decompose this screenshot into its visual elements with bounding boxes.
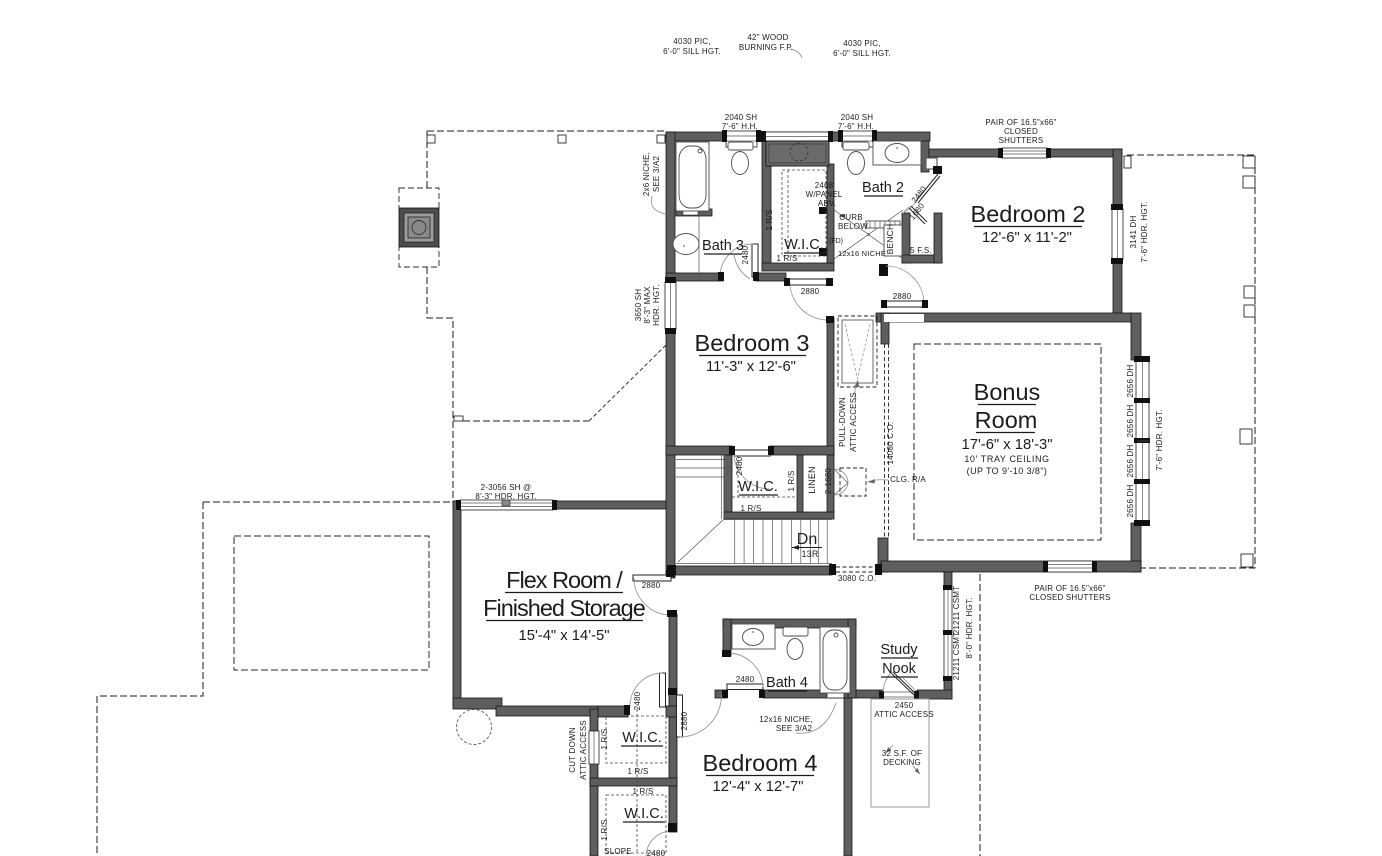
svg-text:12x16 NICHE: 12x16 NICHE [838,249,886,258]
svg-text:5 F.S.: 5 F.S. [910,246,932,255]
svg-text:2480: 2480 [736,675,755,684]
svg-text:PAIR OF 16.5"x66": PAIR OF 16.5"x66" [985,118,1056,127]
svg-text:32 S.F. OF: 32 S.F. OF [882,749,922,758]
svg-text:7'-6" H.H.: 7'-6" H.H. [838,122,874,131]
svg-text:2880: 2880 [642,581,661,590]
svg-text:2656 DH: 2656 DH [1126,484,1135,517]
svg-text:Dn: Dn [797,531,817,548]
svg-text:3141 DH: 3141 DH [1129,215,1138,248]
svg-text:BENCH: BENCH [885,224,895,255]
svg-text:Nook: Nook [882,661,917,677]
svg-text:1 R/S: 1 R/S [765,209,774,230]
svg-text:3080 C.O.: 3080 C.O. [838,574,876,583]
svg-text:ATTIC ACCESS: ATTIC ACCESS [579,720,588,780]
svg-text:ATTIC ACCESS: ATTIC ACCESS [849,392,858,452]
svg-text:15'-4" x 14'-5": 15'-4" x 14'-5" [518,628,609,644]
svg-text:7'-6" H.H.: 7'-6" H.H. [722,122,758,131]
svg-text:1 R/S: 1 R/S [740,504,761,513]
svg-text:2040 SH: 2040 SH [725,113,758,122]
svg-text:DECKING: DECKING [883,758,921,767]
svg-text:14080 C.O.: 14080 C.O. [886,422,895,465]
svg-text:2880: 2880 [893,292,912,301]
svg-text:17'-6" x 18'-3": 17'-6" x 18'-3" [961,437,1052,453]
svg-text:42" WOOD: 42" WOOD [747,33,788,42]
svg-text:SEE 3/A2: SEE 3/A2 [652,156,661,193]
svg-text:1 R/S: 1 R/S [776,254,797,263]
svg-text:2656 DH: 2656 DH [1126,444,1135,477]
svg-text:1 R/S: 1 R/S [627,767,648,776]
svg-text:Bedroom 2: Bedroom 2 [971,201,1086,227]
svg-text:12'-6" x 11'-2": 12'-6" x 11'-2" [982,230,1072,246]
svg-text:2x6 NICHE,: 2x6 NICHE, [642,152,651,196]
svg-text:8'-3" HDR. HGT.: 8'-3" HDR. HGT. [475,492,536,501]
svg-text:4030 PIC,: 4030 PIC, [843,39,880,48]
svg-text:SEE 3/A2: SEE 3/A2 [776,724,813,733]
svg-text:1 R/S: 1 R/S [600,819,609,840]
svg-text:13R: 13R [801,549,818,559]
svg-text:Bath 3: Bath 3 [702,238,744,254]
svg-text:BELOW: BELOW [838,222,868,231]
svg-text:SLOPE: SLOPE [604,847,632,856]
svg-text:6'-0" SILL HGT.: 6'-0" SILL HGT. [663,47,721,56]
svg-text:7'-6" HDR. HGT.: 7'-6" HDR. HGT. [1155,409,1164,470]
svg-text:Finished Storage: Finished Storage [483,595,646,621]
svg-text:CLOSED SHUTTERS: CLOSED SHUTTERS [1029,593,1110,602]
svg-text:SHUTTERS: SHUTTERS [999,136,1044,145]
svg-text:6'-0" SILL HGT.: 6'-0" SILL HGT. [833,49,891,58]
svg-text:2656 DH: 2656 DH [1126,404,1135,437]
svg-text:21211 CSMT: 21211 CSMT [952,632,961,681]
svg-text:2880: 2880 [680,711,689,730]
svg-text:Bath 2: Bath 2 [862,180,904,196]
svg-text:CLOSED: CLOSED [1004,127,1038,136]
svg-text:W.I.C.: W.I.C. [624,806,663,822]
svg-text:2480: 2480 [633,691,642,710]
svg-text:12x16 NICHE,: 12x16 NICHE, [759,715,813,724]
svg-text:PAIR OF 16.5"x66": PAIR OF 16.5"x66" [1034,584,1105,593]
svg-text:Bedroom 3: Bedroom 3 [695,330,810,356]
svg-text:W/PANEL: W/PANEL [806,190,843,199]
svg-text:Study: Study [880,642,918,658]
svg-text:2480: 2480 [647,849,666,856]
svg-text:3650 SH: 3650 SH [634,289,643,322]
svg-text:2-3056 SH @: 2-3056 SH @ [481,483,532,492]
svg-text:7'-6" HDR. HGT.: 7'-6" HDR. HGT. [1140,201,1149,262]
svg-text:2480: 2480 [735,456,744,475]
svg-text:Room: Room [975,407,1038,433]
svg-text:8'-3" MAX: 8'-3" MAX [643,286,652,324]
svg-text:HDR. HGT.: HDR. HGT. [652,284,661,326]
svg-text:ATTIC ACCESS: ATTIC ACCESS [874,710,934,719]
svg-text:Bonus: Bonus [974,379,1041,405]
svg-text:2656 DH: 2656 DH [1126,364,1135,397]
svg-text:Bedroom 4: Bedroom 4 [703,750,818,776]
svg-text:1 R/S: 1 R/S [600,728,609,749]
svg-text:CURB: CURB [839,213,862,222]
svg-text:10' TRAY CEILING: 10' TRAY CEILING [964,454,1049,464]
svg-text:1 R/S: 1 R/S [632,787,653,796]
svg-text:W.I.C.: W.I.C. [738,479,777,495]
svg-text:Flex Room /: Flex Room / [506,567,623,593]
svg-text:LINEN: LINEN [807,466,817,494]
svg-text:21211 CSMT: 21211 CSMT [952,586,961,635]
svg-text:ABV.: ABV. [818,199,836,208]
svg-text:2480: 2480 [741,245,750,264]
svg-text:1 R/S: 1 R/S [787,470,796,491]
svg-text:2450: 2450 [895,701,914,710]
svg-text:Bath 4: Bath 4 [766,675,808,691]
svg-text:W.I.C.: W.I.C. [622,730,661,746]
svg-text:12'-4" x 12'-7": 12'-4" x 12'-7" [712,779,803,795]
svg-text:(UP TO 9'-10 3/8"): (UP TO 9'-10 3/8") [967,466,1048,476]
svg-text:2468: 2468 [815,181,834,190]
svg-text:8'-0" HDR. HGT.: 8'-0" HDR. HGT. [965,597,974,658]
svg-text:2880: 2880 [801,287,820,296]
svg-text:CLG. R/A: CLG. R/A [890,475,926,484]
svg-text:(FD): (FD) [829,238,843,245]
svg-text:4030 PIC,: 4030 PIC, [673,37,710,46]
svg-text:2-1680: 2-1680 [824,468,833,494]
svg-text:W.I.C.: W.I.C. [784,237,823,253]
svg-text:CUT DOWN: CUT DOWN [568,727,577,772]
svg-text:PULL-DOWN: PULL-DOWN [838,397,847,447]
svg-text:BURNING F.P.: BURNING F.P. [739,43,793,52]
svg-text:11'-3" x 12'-6": 11'-3" x 12'-6" [706,359,796,375]
svg-text:2040 SH: 2040 SH [841,113,874,122]
